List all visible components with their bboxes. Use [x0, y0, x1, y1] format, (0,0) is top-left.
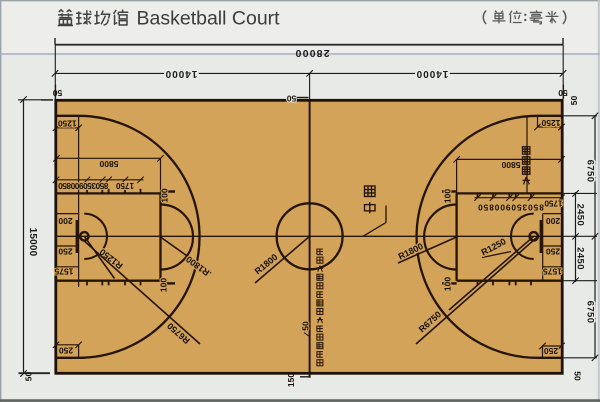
svg-text:15000: 15000 [27, 228, 38, 257]
svg-text:100: 100 [443, 277, 453, 291]
svg-text:150: 150 [286, 373, 296, 387]
svg-text:Basketball Court: Basketball Court [137, 8, 281, 30]
svg-text:1250: 1250 [58, 119, 77, 129]
svg-text:1250: 1250 [541, 118, 560, 128]
svg-text:50: 50 [572, 371, 582, 381]
svg-text:2450: 2450 [575, 203, 586, 226]
svg-text:250: 250 [58, 247, 72, 257]
svg-text:100: 100 [160, 188, 170, 202]
svg-text:100: 100 [443, 189, 453, 203]
svg-text:5800: 5800 [99, 159, 118, 169]
svg-text:850350900850: 850350900850 [477, 203, 544, 213]
svg-text:1750: 1750 [544, 199, 563, 208]
svg-text:2450: 2450 [575, 247, 586, 270]
svg-text:1750: 1750 [115, 181, 134, 190]
svg-text:250: 250 [546, 247, 560, 257]
svg-text:50: 50 [569, 96, 579, 106]
svg-text:6750: 6750 [585, 301, 596, 324]
svg-text:14000: 14000 [416, 68, 449, 79]
svg-text:50: 50 [24, 372, 34, 382]
svg-text:850350900850: 850350900850 [58, 181, 109, 190]
svg-text:1575: 1575 [54, 267, 73, 277]
svg-text:250: 250 [544, 346, 558, 356]
svg-text:1575: 1575 [543, 267, 562, 277]
svg-text:28000: 28000 [294, 47, 329, 59]
svg-text:50: 50 [301, 321, 311, 331]
svg-text:50: 50 [53, 88, 63, 98]
svg-text:50: 50 [287, 94, 297, 104]
svg-text:200: 200 [546, 216, 560, 226]
svg-text:200: 200 [58, 216, 72, 226]
svg-text:6750: 6750 [585, 160, 596, 183]
svg-text:250: 250 [59, 346, 73, 356]
svg-text:5800: 5800 [501, 160, 520, 170]
svg-text:14000: 14000 [165, 68, 198, 79]
svg-text:100: 100 [159, 278, 169, 292]
